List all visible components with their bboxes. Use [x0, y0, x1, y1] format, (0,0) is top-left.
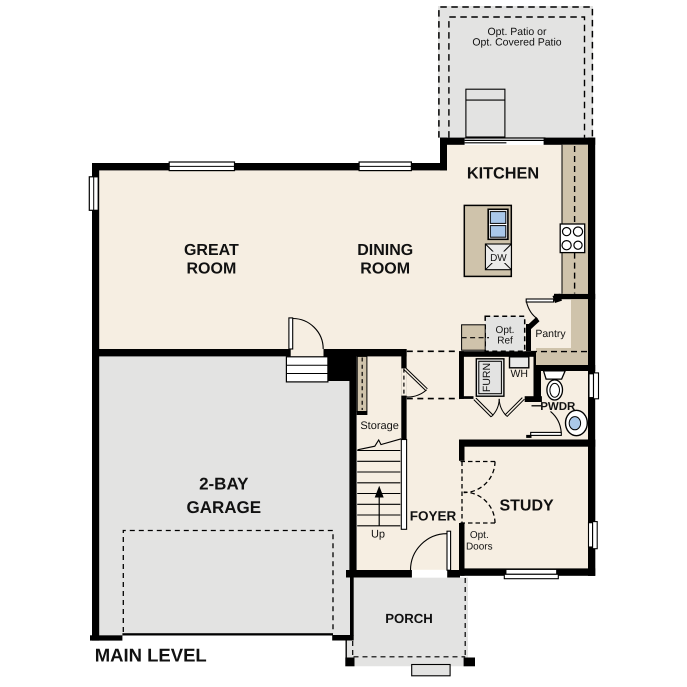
svg-text:2-BAY: 2-BAY — [199, 475, 249, 494]
svg-text:Doors: Doors — [466, 542, 493, 553]
svg-text:PORCH: PORCH — [385, 611, 433, 626]
svg-text:WH: WH — [510, 368, 528, 380]
svg-text:Opt.: Opt. — [496, 325, 515, 336]
svg-text:DINING: DINING — [357, 242, 413, 259]
svg-text:GARAGE: GARAGE — [186, 498, 261, 517]
svg-text:ROOM: ROOM — [187, 261, 237, 278]
svg-text:ROOM: ROOM — [360, 261, 410, 278]
svg-text:FURN: FURN — [481, 363, 493, 392]
svg-text:Opt. Covered Patio: Opt. Covered Patio — [472, 37, 561, 49]
svg-text:FOYER: FOYER — [410, 508, 457, 523]
svg-text:DW: DW — [490, 253, 507, 264]
svg-text:Up: Up — [371, 529, 385, 541]
svg-text:STUDY: STUDY — [499, 497, 554, 514]
svg-text:Ref: Ref — [497, 336, 513, 347]
svg-text:PWDR: PWDR — [540, 401, 576, 413]
svg-text:Storage: Storage — [360, 420, 399, 432]
svg-text:Opt.: Opt. — [470, 530, 489, 541]
svg-text:Pantry: Pantry — [535, 328, 566, 340]
svg-text:MAIN LEVEL: MAIN LEVEL — [95, 644, 207, 665]
svg-text:GREAT: GREAT — [184, 242, 239, 259]
svg-text:KITCHEN: KITCHEN — [467, 164, 539, 182]
